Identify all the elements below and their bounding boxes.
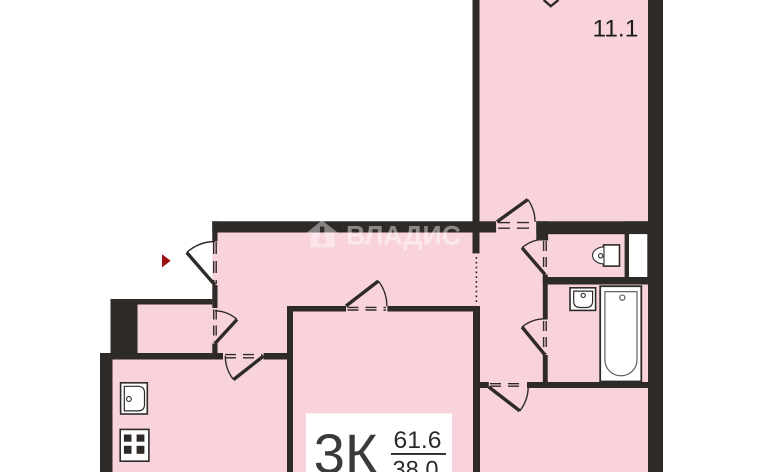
- svg-text:ВЛАДИС: ВЛАДИС: [346, 220, 461, 250]
- svg-text:38.0: 38.0: [393, 456, 439, 472]
- svg-text:11.1: 11.1: [593, 16, 639, 43]
- svg-text:3К: 3К: [314, 422, 378, 472]
- svg-text:61.6: 61.6: [394, 427, 442, 454]
